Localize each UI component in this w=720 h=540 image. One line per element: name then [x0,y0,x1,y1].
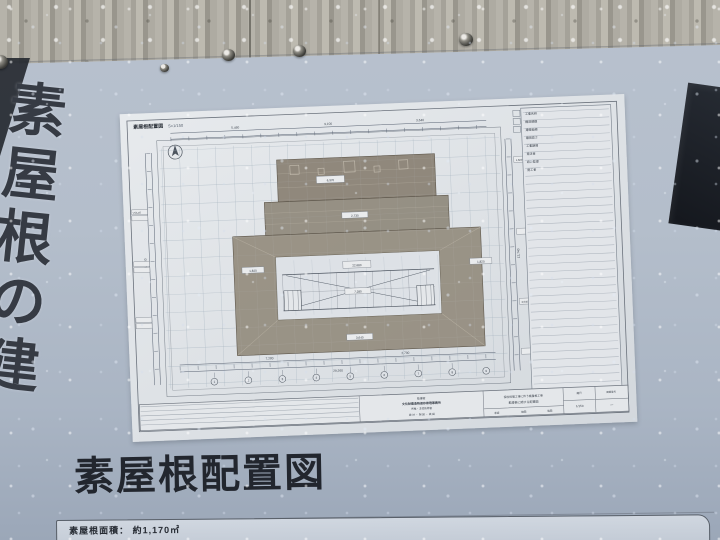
banner-char: 建 [0,331,43,402]
site-plan-drawing: 素屋根配置図 S=1/150 [120,94,638,442]
svg-text:1/150: 1/150 [576,404,584,408]
svg-text:29,260: 29,260 [333,369,343,373]
svg-text:構造規模: 構造規模 [525,119,537,124]
bolt-head [222,49,235,61]
svg-text:工事名称: 工事名称 [525,111,537,116]
svg-text:12,740: 12,740 [516,248,520,258]
svg-text:1,820: 1,820 [516,158,523,162]
svg-text:工事期間: 工事期間 [526,142,538,147]
corrugated-wall [0,0,720,66]
banner-char: 根 [0,204,56,275]
svg-text:22,680: 22,680 [352,263,362,267]
dark-side-banner [668,83,720,232]
svg-text:7,280: 7,280 [354,289,362,293]
svg-text:1,820: 1,820 [249,269,257,273]
svg-text:2,730: 2,730 [401,351,409,355]
svg-text:最高高さ: 最高高さ [526,135,538,140]
bolt-head [293,45,306,57]
banner-char: 素 [0,77,70,148]
bolt-head [160,64,169,72]
svg-text:承認: 承認 [494,411,500,415]
title-block: 監理者 文化財建造物保存修理事務所 所長・主任技術者 設 計 ・ 製 図 ・ 検… [139,385,629,431]
svg-text:監理者: 監理者 [417,396,426,400]
svg-text:6,370: 6,370 [327,178,335,182]
svg-text:設計監理: 設計監理 [527,158,539,163]
sheet-scale: S=1/150 [168,123,184,129]
vertical-title-banner: 素屋根の建 [0,77,66,402]
svg-text:検図: 検図 [521,410,527,414]
svg-text:1,820: 1,820 [477,260,485,264]
svg-text:2,730: 2,730 [351,214,359,218]
banner-char: 屋 [0,140,63,211]
svg-text:3,640: 3,640 [356,335,364,339]
svg-text:9,100: 9,100 [324,122,332,126]
svg-text:—: — [610,403,613,407]
svg-text:▽GL±0: ▽GL±0 [133,210,142,214]
bolt-head [459,33,473,46]
svg-text:5,460: 5,460 [231,125,239,129]
sign-caption: 素屋根配置図 [74,440,327,502]
area-info-label: 素屋根面積： 約1,170㎡ [69,523,180,537]
notes-column: 工事名称構造規模 建築面積最高高さ 工事期間発注者 設計監理施工者 [513,105,623,401]
svg-text:3,640: 3,640 [416,118,424,122]
svg-text:製図: 製図 [547,409,553,413]
svg-text:所長・主任技術者: 所長・主任技術者 [411,406,432,411]
svg-text:施工者: 施工者 [527,167,536,172]
banner-char: の [0,267,50,338]
svg-text:3,640: 3,640 [521,300,528,304]
wall-seam [378,0,380,66]
svg-text:縮尺: 縮尺 [577,391,583,395]
axis-markers: 12 34 56 78 9 [211,364,490,385]
north-arrow-icon [168,145,183,160]
area-info-strip: 素屋根面積： 約1,170㎡ [56,514,710,540]
svg-text:図面番号: 図面番号 [606,390,616,394]
svg-text:建築面積: 建築面積 [525,127,537,132]
sheet-title: 素屋根配置図 [132,123,163,131]
svg-text:7,280: 7,280 [265,356,273,360]
signboard-photo: 素屋根の建 素屋根配置図 S=1/150 [0,0,720,540]
drawing-sheet: 素屋根配置図 S=1/150 [120,94,638,442]
svg-text:発注者: 発注者 [526,151,535,156]
